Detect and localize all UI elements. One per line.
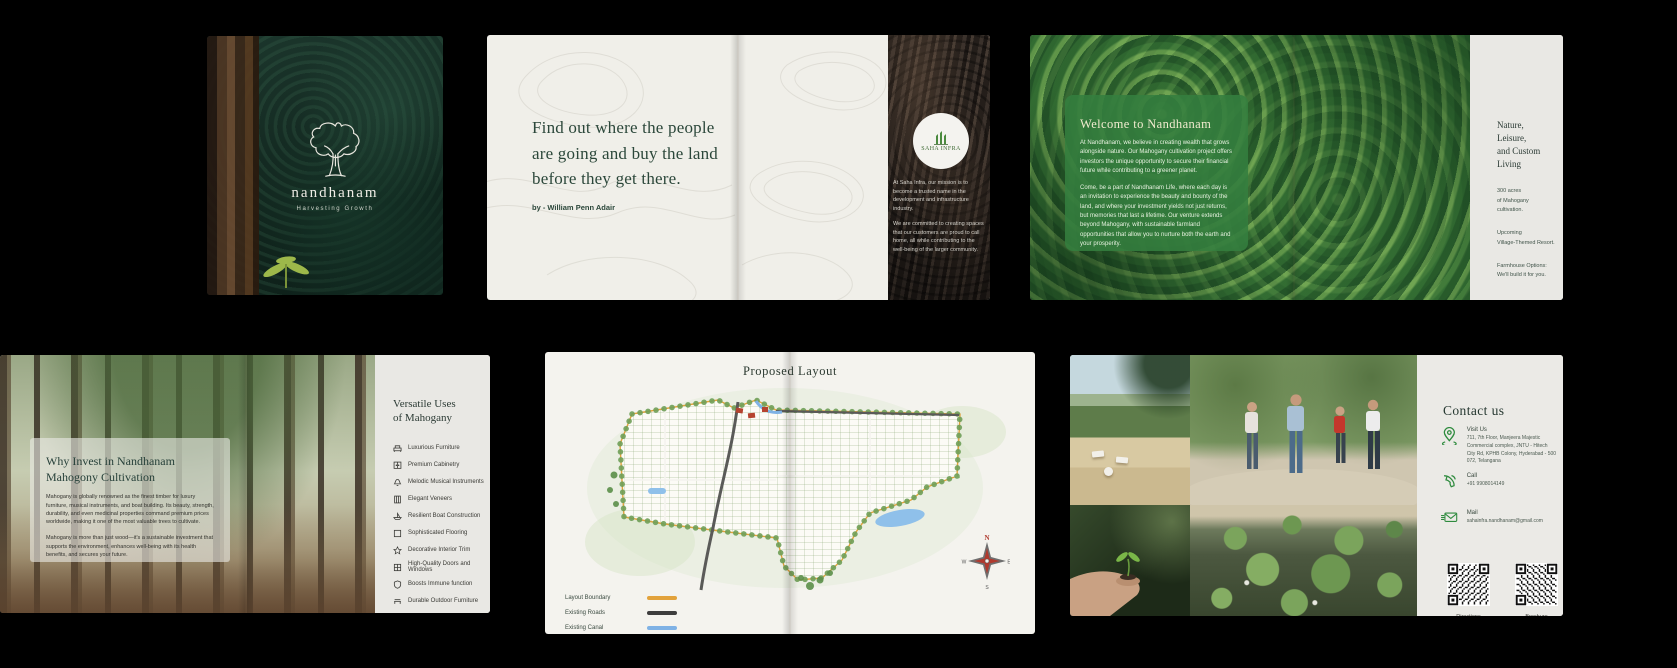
highlight-item: Farmhouse Options: We'll build it for yo…: [1497, 262, 1555, 281]
use-label: Melodic Musical Instruments: [408, 479, 484, 485]
bench-icon: [393, 597, 402, 606]
family-photo: [1190, 355, 1417, 505]
brochure-showcase: nandhanam Harvesting Growth: [0, 0, 1677, 668]
map-legend: Layout Boundary Existing Roads Existing …: [565, 595, 677, 634]
legend-swatch-canal: [647, 626, 677, 631]
layout-spread: Proposed Layout: [545, 352, 1035, 634]
contact-value: sahainfra.nandhanam@gmail.com: [1467, 518, 1557, 526]
legend-item: Layout Boundary: [565, 595, 677, 601]
contact-value: 711, 7th Floor, Manjeera Majestic Commer…: [1467, 435, 1557, 466]
invest-paragraph-1: Mahogany is globally renowned as the fin…: [46, 493, 216, 526]
family-figures: [1190, 355, 1417, 505]
seedling-photo: [1070, 505, 1190, 616]
sapling-photo-accent: [257, 248, 317, 292]
invest-heading: Why Invest in Nandhanam Mahogony Cultiva…: [46, 453, 216, 485]
uses-heading: Versatile Uses of Mahogany: [393, 397, 484, 426]
brand-wordmark: nandhanam: [291, 185, 378, 202]
use-item: Premium Cabinetry: [393, 457, 484, 474]
use-item: High-Quality Doors and Windows: [393, 559, 484, 576]
contact-panel: Contact us Visit Us 711, 7th Floor, Manj…: [1417, 355, 1563, 616]
bark-photo-panel: SAHA INFRA At Saha Infra, our mission is…: [888, 35, 990, 300]
qr-label: Directions: [1447, 614, 1490, 616]
use-label: Premium Cabinetry: [408, 462, 459, 468]
use-item: Resilient Boat Construction: [393, 508, 484, 525]
use-item: Melodic Musical Instruments: [393, 474, 484, 491]
highlights-heading-line2: and Custom Living: [1497, 145, 1555, 171]
cover-page: nandhanam Harvesting Growth: [207, 36, 443, 295]
invest-heading-line2: Mahogony Cultivation: [46, 469, 216, 485]
qr-label: Brochure: [1515, 614, 1558, 616]
highlight-line: Upcoming: [1497, 229, 1555, 238]
quote-spread: Find out where the people are going and …: [487, 35, 990, 300]
contact-item-visit: Visit Us 711, 7th Floor, Manjeera Majest…: [1441, 427, 1557, 466]
contact-spread: Contact us Visit Us 711, 7th Floor, Manj…: [1070, 355, 1563, 616]
flooring-icon: [393, 529, 402, 538]
highlight-item: Upcoming Village-Themed Resort.: [1497, 229, 1555, 248]
quote-block: Find out where the people are going and …: [532, 115, 722, 212]
sofa-icon: [393, 444, 402, 453]
brand-logo: nandhanam Harvesting Growth: [291, 120, 378, 212]
use-label: Resilient Boat Construction: [408, 513, 480, 519]
use-label: Decorative Interior Trim: [408, 547, 470, 553]
legend-label: Layout Boundary: [565, 595, 637, 601]
contact-value: +91 9908014149: [1467, 481, 1557, 489]
contact-label: Visit Us: [1467, 427, 1557, 433]
resort-photo: [1070, 355, 1190, 505]
use-item: Boosts Immune function: [393, 576, 484, 593]
use-label: Durable Outdoor Furniture: [408, 598, 478, 604]
highlight-line: Farmhouse Options:: [1497, 262, 1555, 271]
contact-item-mail: Mail sahainfra.nandhanam@gmail.com: [1441, 510, 1557, 526]
use-item: Luxurious Furniture: [393, 440, 484, 457]
photo-collage: [1070, 355, 1417, 616]
use-label: Elegant Veneers: [408, 496, 452, 502]
welcome-paragraph-1: At Nandhanam, we believe in creating wea…: [1080, 139, 1235, 176]
highlight-item: 300 acres of Mahogany cultivation.: [1497, 187, 1555, 215]
mission-paragraph-1: At Saha Infra, our mission is to become …: [893, 179, 985, 213]
highlights-heading: Nature, Leisure, and Custom Living: [1497, 119, 1555, 171]
legend-label: Existing Canal: [565, 625, 637, 631]
veneer-icon: [393, 495, 402, 504]
highlight-line: We'll build it for you.: [1497, 271, 1555, 280]
invest-heading-line1: Why Invest in Nandhanam: [46, 453, 216, 469]
saha-infra-emblem-icon: [932, 131, 950, 145]
contact-heading: Contact us: [1443, 403, 1504, 419]
star-icon: [393, 546, 402, 555]
uses-heading-line1: Versatile Uses: [393, 397, 484, 411]
shield-icon: [393, 580, 402, 589]
use-label: Sophisticated Flooring: [408, 530, 467, 536]
saha-infra-name: SAHA INFRA: [921, 146, 961, 152]
highlight-line: 300 acres: [1497, 187, 1555, 196]
highlight-line: Village-Themed Resort.: [1497, 239, 1555, 248]
invest-paragraph-2: Mahogany is more than just wood—it's a s…: [46, 534, 216, 559]
use-item: Elegant Veneers: [393, 491, 484, 508]
uses-panel: Versatile Uses of Mahogany Luxurious Fur…: [375, 355, 490, 613]
use-label: Boosts Immune function: [408, 581, 472, 587]
compass-s: S: [985, 585, 989, 591]
mission-paragraph-2: We are committed to creating spaces that…: [893, 220, 985, 254]
welcome-overlay: Welcome to Nandhanam At Nandhanam, we be…: [1065, 95, 1248, 251]
compass-w: W: [962, 560, 967, 566]
uses-list: Luxurious Furniture Premium Cabinetry Me…: [393, 440, 484, 610]
invest-spread: Why Invest in Nandhanam Mahogony Cultiva…: [0, 355, 490, 613]
brand-tagline: Harvesting Growth: [291, 206, 378, 212]
use-label: Luxurious Furniture: [408, 445, 460, 451]
legend-swatch-roads: [647, 611, 677, 616]
boat-icon: [393, 512, 402, 521]
contact-label: Mail: [1467, 510, 1557, 516]
use-item: Durable Outdoor Furniture: [393, 593, 484, 610]
location-pin-icon: [1441, 427, 1458, 445]
tree-icon: [306, 120, 364, 178]
use-item: Decorative Interior Trim: [393, 542, 484, 559]
hand-seedling-figure: [1070, 505, 1190, 616]
quote-attribution: by - William Penn Adair: [532, 203, 722, 212]
compass-e: E: [1007, 560, 1010, 566]
mission-text: At Saha Infra, our mission is to become …: [893, 179, 985, 261]
welcome-title: Welcome to Nandhanam: [1080, 117, 1235, 132]
qr-code-icon: [1447, 563, 1490, 606]
use-item: Sophisticated Flooring: [393, 525, 484, 542]
mail-icon: [1441, 510, 1458, 524]
use-label: High-Quality Doors and Windows: [408, 561, 484, 573]
bell-icon: [393, 478, 402, 487]
invest-overlay: Why Invest in Nandhanam Mahogony Cultiva…: [30, 438, 230, 562]
lily-pond-photo: [1190, 505, 1417, 616]
cabinet-icon: [393, 461, 402, 470]
qr-directions: Directions: [1447, 563, 1490, 616]
saha-infra-logo: SAHA INFRA: [913, 113, 969, 169]
quote-text: Find out where the people are going and …: [532, 115, 722, 192]
contact-item-call: Call +91 9908014149: [1441, 473, 1557, 490]
compass-n: N: [984, 534, 989, 542]
qr-code-icon: [1515, 563, 1558, 606]
uses-heading-line2: of Mahogany: [393, 411, 484, 425]
window-icon: [393, 563, 402, 572]
legend-item: Existing Roads: [565, 610, 677, 616]
legend-swatch-boundary: [647, 596, 677, 601]
highlight-line: of Mahogany cultivation.: [1497, 197, 1555, 216]
highlights-heading-line1: Nature, Leisure,: [1497, 119, 1555, 145]
contact-label: Call: [1467, 473, 1557, 479]
phone-icon: [1441, 473, 1458, 490]
highlights-list: 300 acres of Mahogany cultivation. Upcom…: [1497, 187, 1555, 280]
layout-map: N E S W: [570, 380, 1010, 608]
highlights-panel: Nature, Leisure, and Custom Living 300 a…: [1470, 35, 1563, 300]
legend-label: Existing Roads: [565, 610, 637, 616]
layout-title: Proposed Layout: [545, 364, 1035, 379]
canal-segment: [648, 488, 666, 494]
welcome-spread: Welcome to Nandhanam At Nandhanam, we be…: [1030, 35, 1563, 300]
legend-item: Existing Canal: [565, 625, 677, 631]
welcome-paragraph-2: Come, be a part of Nandhanam Life, where…: [1080, 184, 1235, 249]
qr-brochure: Brochure: [1515, 563, 1558, 616]
compass-rose: N E S W: [962, 534, 1010, 591]
